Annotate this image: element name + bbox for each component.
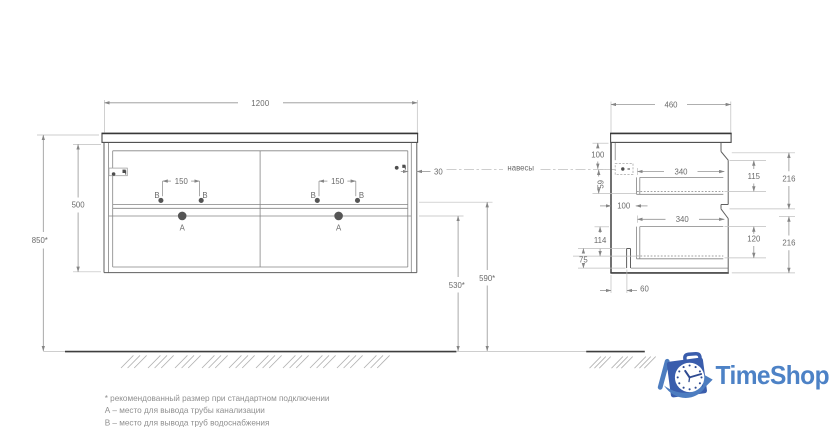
svg-text:340: 340 xyxy=(676,215,690,224)
svg-text:340: 340 xyxy=(674,167,688,176)
svg-text:B: B xyxy=(311,191,316,200)
svg-text:500: 500 xyxy=(72,201,86,210)
svg-text:TimeShop: TimeShop xyxy=(716,360,830,390)
svg-text:75: 75 xyxy=(579,256,588,265)
svg-text:1200: 1200 xyxy=(251,99,270,108)
svg-text:A: A xyxy=(336,223,342,232)
svg-text:530*: 530* xyxy=(449,281,465,290)
svg-text:114: 114 xyxy=(594,236,607,245)
svg-text:А – место для вывода трубы кан: А – место для вывода трубы канализации xyxy=(105,406,265,415)
svg-text:460: 460 xyxy=(664,100,678,109)
svg-text:B: B xyxy=(202,191,207,200)
svg-text:115: 115 xyxy=(748,172,761,181)
svg-text:59: 59 xyxy=(596,180,605,189)
svg-text:100: 100 xyxy=(617,202,631,211)
svg-text:150: 150 xyxy=(331,177,345,186)
svg-text:850*: 850* xyxy=(32,236,48,245)
svg-text:216: 216 xyxy=(782,239,795,248)
svg-text:A: A xyxy=(180,223,186,232)
svg-text:В – место для вывода труб водо: В – место для вывода труб водоснабжения xyxy=(105,419,270,428)
svg-text:590*: 590* xyxy=(479,274,495,283)
svg-text:30: 30 xyxy=(434,167,443,176)
svg-text:216: 216 xyxy=(782,174,795,183)
svg-text:150: 150 xyxy=(175,177,189,186)
svg-text:навесы: навесы xyxy=(507,164,534,173)
svg-text:60: 60 xyxy=(640,285,649,294)
svg-text:B: B xyxy=(359,191,364,200)
svg-text:* рекомендованный размер при с: * рекомендованный размер при стандартном… xyxy=(105,394,330,403)
svg-text:100: 100 xyxy=(591,151,605,160)
svg-text:120: 120 xyxy=(747,234,761,243)
svg-text:B: B xyxy=(154,191,159,200)
